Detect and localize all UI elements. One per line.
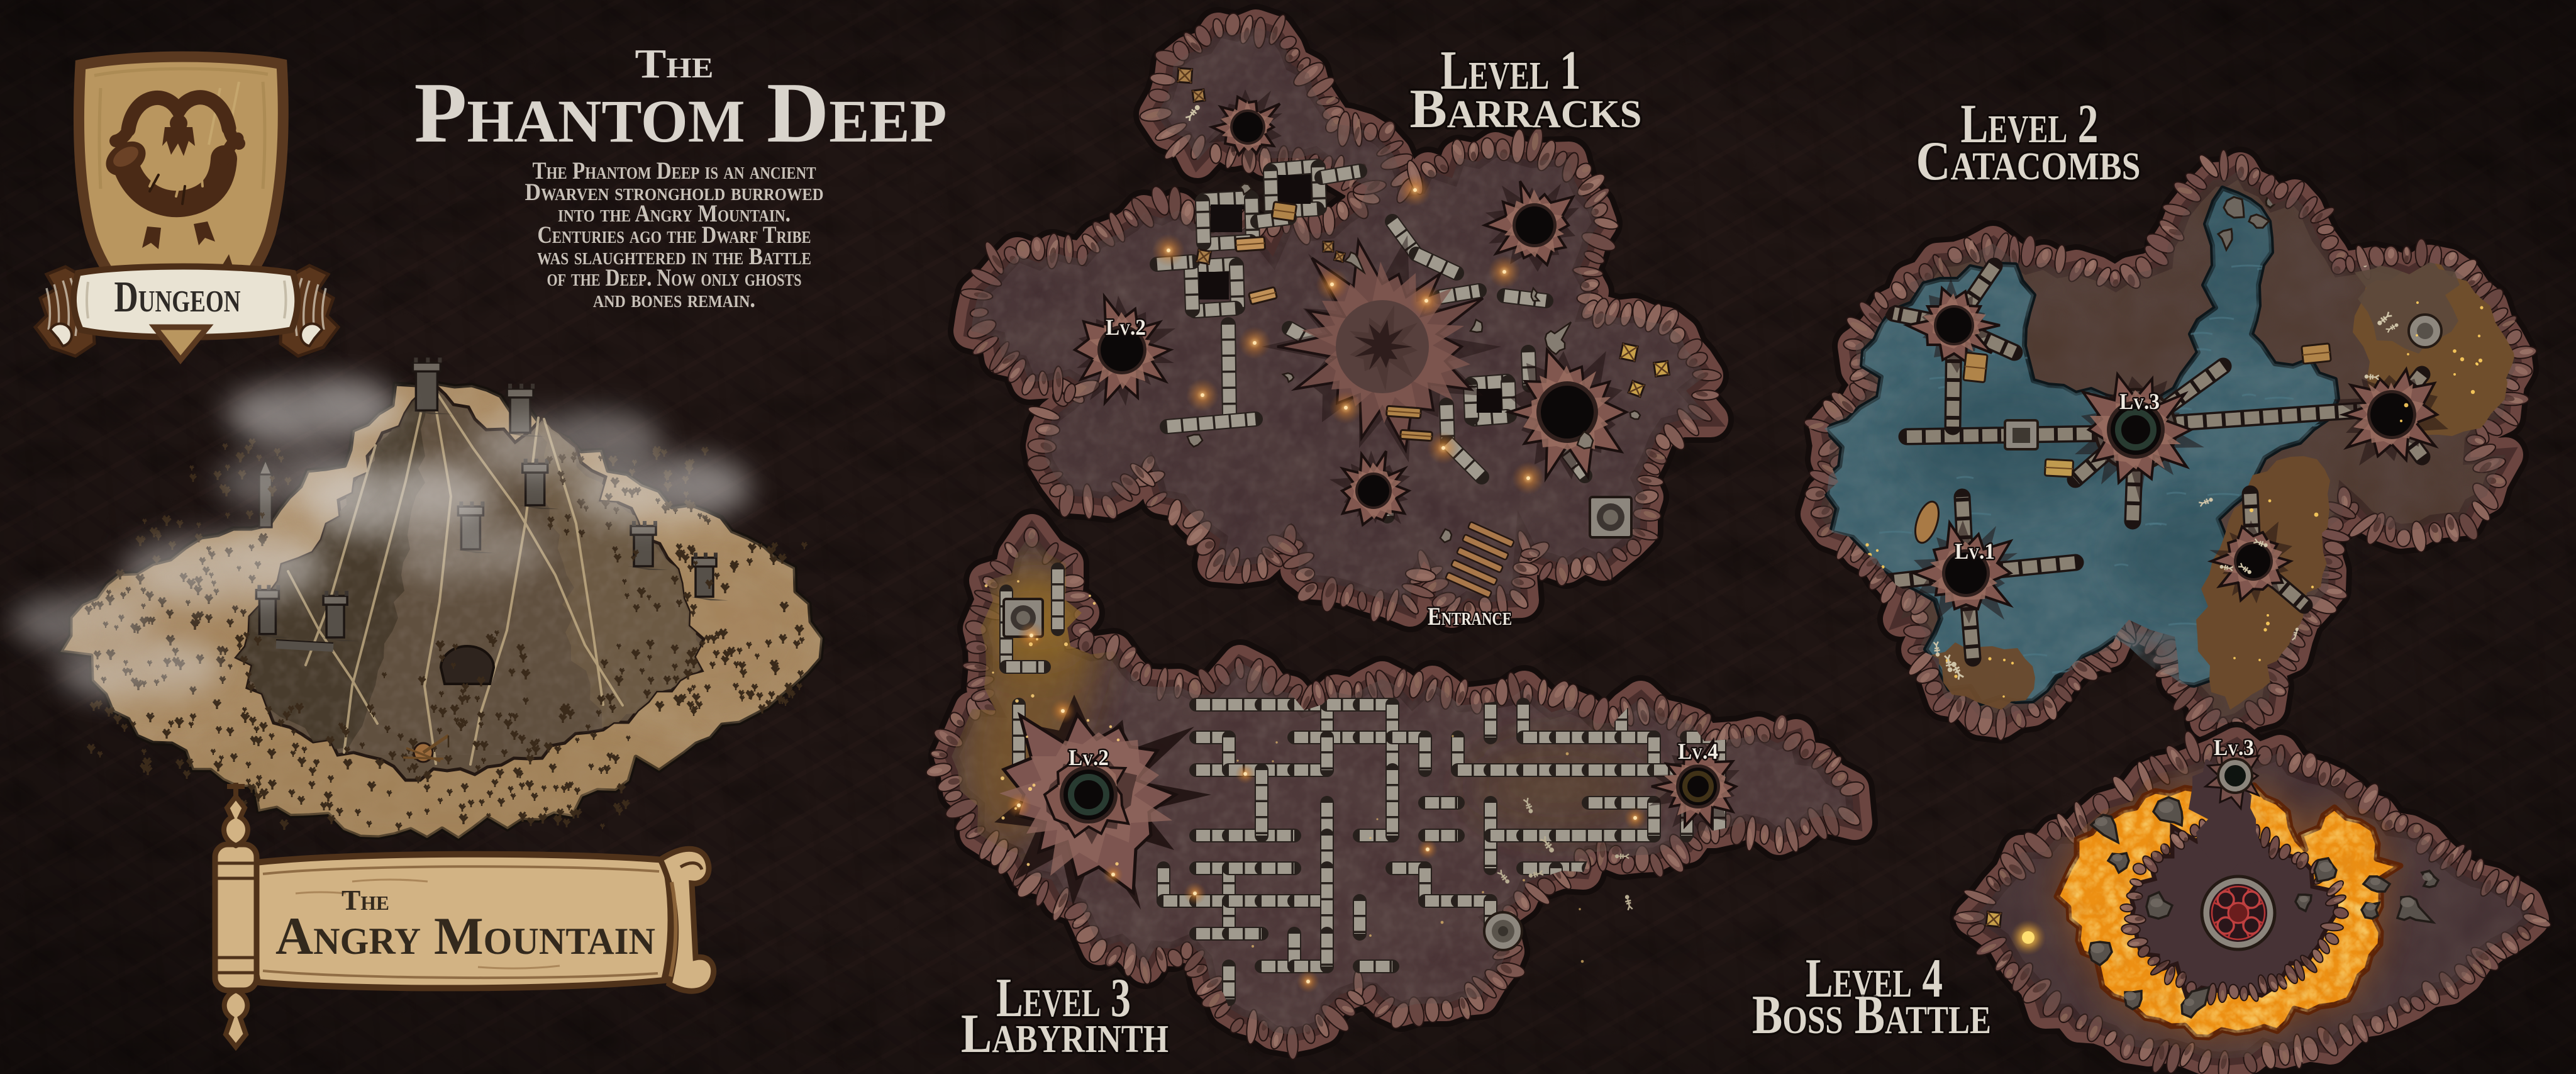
svg-text:Entrance: Entrance xyxy=(1428,602,1512,630)
svg-text:Barracks: Barracks xyxy=(1410,79,1642,140)
svg-text:Labyrinth: Labyrinth xyxy=(961,1004,1169,1065)
svg-text:Lv.2: Lv.2 xyxy=(1069,745,1109,770)
svg-text:Lv.4: Lv.4 xyxy=(1678,739,1718,764)
svg-text:Lv.3: Lv.3 xyxy=(2119,389,2160,414)
svg-text:Catacombs: Catacombs xyxy=(1916,131,2141,192)
svg-text:Boss Battle: Boss Battle xyxy=(1752,985,1991,1046)
svg-text:Angry Mountain: Angry Mountain xyxy=(275,907,655,966)
svg-text:Lv.1: Lv.1 xyxy=(1955,539,1995,564)
svg-text:Lv.3: Lv.3 xyxy=(2214,735,2254,760)
svg-text:and bones remain.: and bones remain. xyxy=(593,286,755,313)
svg-text:Dungeon: Dungeon xyxy=(114,273,241,322)
svg-text:Lv.2: Lv.2 xyxy=(1106,315,1146,340)
svg-text:Phantom Deep: Phantom Deep xyxy=(414,65,947,160)
